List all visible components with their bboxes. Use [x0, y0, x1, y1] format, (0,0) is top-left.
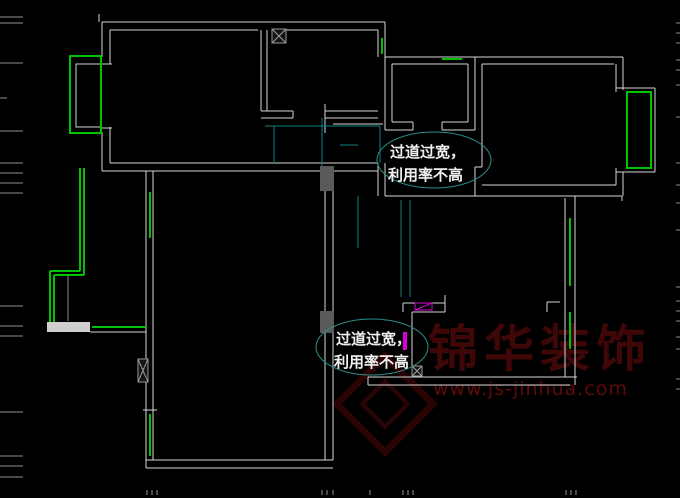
fixture-magenta-diagonal [415, 303, 432, 310]
window-bay-rect [627, 92, 651, 168]
watermark-title: 锦华装饰 [428, 320, 652, 378]
floorplan-svg: 锦华装饰 www.js-jinhua.com 过道过宽， 利用率不高 过道过宽，… [0, 0, 680, 498]
annotation-text-line: 过道过宽， [336, 330, 411, 348]
inner-wall-rect [76, 64, 101, 127]
window-bay-rect [70, 56, 101, 133]
annotation-text-line: 过道过宽， [390, 143, 465, 161]
watermark-url: www.js-jinhua.com [433, 378, 628, 400]
annotation-text-line: 利用率不高 [388, 166, 463, 184]
annotation-text-line: 利用率不高 [334, 353, 409, 371]
cad-drawing-area[interactable]: 锦华装饰 www.js-jinhua.com 过道过宽， 利用率不高 过道过宽，… [0, 0, 680, 498]
column-fill [47, 322, 90, 332]
column-fill [320, 166, 334, 191]
watermark-diamond [362, 381, 407, 426]
watermark-text-layer: 锦华装饰 www.js-jinhua.com [428, 320, 652, 400]
